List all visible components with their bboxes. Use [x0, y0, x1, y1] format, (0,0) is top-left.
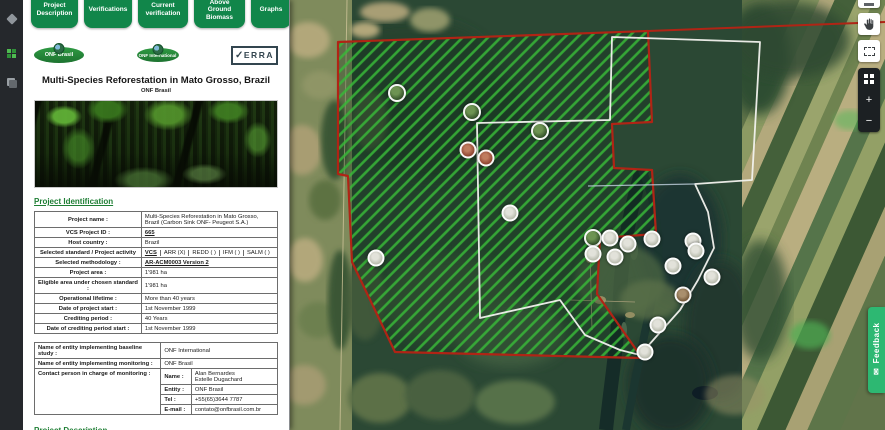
standard-cell: IFM ( ) — [219, 250, 243, 256]
row-label: Host country : — [35, 238, 142, 248]
row-label: Contact person in charge of monitoring : — [35, 369, 161, 415]
document-subtitle: ONF Brasil — [34, 88, 278, 94]
row-value: ONF Brasil — [161, 359, 278, 369]
row-value: Brazil — [141, 238, 277, 248]
photo-marker-forest[interactable] — [388, 84, 406, 102]
move-diamond-icon — [6, 13, 17, 24]
verra-logo: ✓ ERRA — [231, 46, 278, 65]
row-value: +55(65)3644 7787 — [191, 395, 277, 405]
nav-project-description-button[interactable]: Project Description — [31, 0, 78, 28]
grid-tool-button[interactable] — [0, 42, 23, 64]
photo-marker-soil[interactable] — [478, 150, 495, 167]
envelope-icon: ✉ — [872, 367, 882, 376]
green-grid-icon — [7, 49, 16, 58]
table-row: VCS Project ID : 665 — [35, 228, 278, 238]
table-row: Date of crediting period start : 1st Nov… — [35, 324, 278, 334]
photo-marker-photo[interactable] — [607, 249, 624, 266]
table-row: Eligible area under chosen standard : 1'… — [35, 278, 278, 294]
document-title: Multi-Species Reforestation in Mato Gros… — [34, 75, 278, 86]
row-label: Date of project start : — [35, 304, 142, 314]
contact-name-line2: Estelle Dugachard — [195, 377, 274, 383]
photo-marker-photo[interactable] — [650, 317, 667, 334]
standard-cell: SALM ( ) — [243, 250, 273, 256]
left-toolbar — [0, 0, 23, 430]
row-label: Operational lifetime : — [35, 294, 142, 304]
row-value: 1st November 1999 — [141, 304, 277, 314]
row-label: Selected methodology : — [35, 258, 142, 268]
onf-international-logo: ONF International — [137, 48, 179, 62]
zoom-out-button[interactable]: − — [858, 110, 880, 131]
globe-icon — [152, 44, 163, 55]
description-heading: Project Description — [34, 426, 278, 430]
photo-marker-forest[interactable] — [584, 229, 602, 247]
row-label: Eligible area under chosen standard : — [35, 278, 142, 294]
select-area-button[interactable] — [858, 40, 880, 62]
document-content: ONF Brasil ONF International ✓ ERRA Mult… — [23, 44, 289, 430]
contact-email: contato@onfbrasil.com.br — [191, 405, 277, 415]
project-document-panel[interactable]: Project Description Verifications Curren… — [23, 0, 290, 430]
photo-marker-soil[interactable] — [460, 142, 477, 159]
row-value: ONF International — [161, 343, 278, 359]
photo-marker-brown[interactable] — [675, 287, 692, 304]
identification-heading: Project Identification — [34, 197, 278, 206]
logo-row: ONF Brasil ONF International ✓ ERRA — [34, 44, 278, 66]
row-value: 1st November 1999 — [141, 324, 277, 334]
row-value: More than 40 years — [141, 294, 277, 304]
photo-marker-photo[interactable] — [602, 230, 619, 247]
standard-cell: VCS — [145, 250, 160, 256]
identification-table: Project name : Multi-Species Reforestati… — [34, 211, 278, 334]
satellite-map[interactable] — [290, 0, 885, 430]
table-row: Name of entity implementing baseline stu… — [35, 343, 278, 359]
row-value: ONF Brasil — [191, 385, 277, 395]
row-label: Selected standard / Project activity — [35, 248, 142, 258]
photo-marker-photo[interactable] — [368, 250, 385, 267]
row-value: AR-ACM0003 Version 2 — [141, 258, 277, 268]
table-row: Crediting period : 40 Years — [35, 314, 278, 324]
pan-tool-button[interactable] — [858, 13, 880, 35]
nav-current-verification-button[interactable]: Current verification — [138, 0, 188, 28]
satellite-map-svg — [290, 0, 885, 430]
row-label: Project name : — [35, 212, 142, 228]
photo-marker-photo[interactable] — [704, 269, 721, 286]
table-row-standard: Selected standard / Project activity VCS… — [35, 248, 278, 258]
nav-above-ground-biomass-button[interactable]: Above Ground Biomass — [194, 0, 245, 28]
project-area-polygon[interactable] — [338, 31, 656, 358]
row-label: Date of crediting period start : — [35, 324, 142, 334]
table-row-contact: Contact person in charge of monitoring :… — [35, 369, 278, 415]
forest-photo — [34, 100, 278, 188]
table-row: Tel : +55(65)3644 7787 — [161, 395, 277, 405]
table-row: Host country : Brazil — [35, 238, 278, 248]
feedback-label: Feedback — [872, 323, 881, 364]
row-label: E-mail : — [161, 405, 191, 415]
app-window: Project Description Verifications Curren… — [0, 0, 885, 430]
move-tool-button[interactable] — [0, 8, 23, 30]
nav-verifications-button[interactable]: Verifications — [84, 0, 132, 28]
fullscreen-button[interactable] — [858, 68, 880, 89]
row-label: VCS Project ID : — [35, 228, 142, 238]
row-value: 1'981 ha — [141, 278, 277, 294]
table-row: Name of entity implementing monitoring :… — [35, 359, 278, 369]
photo-marker-photo[interactable] — [637, 344, 654, 361]
row-value: 40 Years — [141, 314, 277, 324]
table-row: Project name : Multi-Species Reforestati… — [35, 212, 278, 228]
photo-marker-photo[interactable] — [665, 258, 682, 275]
feedback-button[interactable]: ✉ Feedback — [868, 307, 885, 393]
row-label: Project area : — [35, 268, 142, 278]
contact-table: Name : Alan Bernardes Estelle Dugachard … — [161, 369, 277, 414]
top-nav: Project Description Verifications Curren… — [31, 0, 290, 28]
tool-icon — [864, 3, 874, 6]
nav-graphs-button[interactable]: Graphs — [251, 0, 290, 28]
photo-marker-photo[interactable] — [688, 243, 705, 260]
zoom-in-button[interactable]: + — [858, 89, 880, 110]
row-label: Name : — [161, 369, 191, 385]
row-value: VCS ARR (X) REDD ( ) IFM ( ) SALM ( ) — [141, 248, 277, 258]
verra-logo-text: ERRA — [244, 50, 274, 60]
table-row: Entity : ONF Brasil — [161, 385, 277, 395]
row-label: Name of entity implementing baseline stu… — [35, 343, 161, 359]
globe-icon — [54, 43, 65, 54]
photo-marker-photo[interactable] — [585, 246, 602, 263]
photo-marker-photo[interactable] — [620, 236, 637, 253]
row-value: 665 — [141, 228, 277, 238]
photo-marker-forest[interactable] — [463, 103, 481, 121]
row-value: Multi-Species Reforestation in Mato Gros… — [141, 212, 277, 228]
marquee-icon — [864, 47, 875, 56]
photo-marker-photo[interactable] — [502, 205, 519, 222]
standard-cells: VCS ARR (X) REDD ( ) IFM ( ) SALM ( ) — [145, 250, 274, 256]
row-label: Entity : — [161, 385, 191, 395]
layers-icon — [7, 78, 17, 88]
row-label: Crediting period : — [35, 314, 142, 324]
table-row: Project area : 1'981 ha — [35, 268, 278, 278]
table-row: E-mail : contato@onfbrasil.com.br — [161, 405, 277, 415]
entities-table: Name of entity implementing baseline stu… — [34, 342, 278, 415]
photo-marker-forest[interactable] — [531, 122, 549, 140]
row-value: 1'981 ha — [141, 268, 277, 278]
row-value: Alan Bernardes Estelle Dugachard — [191, 369, 277, 385]
standard-cell: REDD ( ) — [188, 250, 219, 256]
expand-icon — [864, 74, 874, 84]
zoom-control-stack: + − — [858, 68, 880, 132]
table-row: Name : Alan Bernardes Estelle Dugachard — [161, 369, 277, 385]
map-tool-button-partial[interactable] — [858, 0, 880, 8]
table-row: Operational lifetime : More than 40 year… — [35, 294, 278, 304]
standard-cell: ARR (X) — [160, 250, 189, 256]
photo-marker-photo[interactable] — [644, 231, 661, 248]
row-label: Name of entity implementing monitoring : — [35, 359, 161, 369]
hand-icon — [863, 18, 876, 31]
table-row: Selected methodology : AR-ACM0003 Versio… — [35, 258, 278, 268]
layers-tool-button[interactable] — [0, 72, 23, 94]
table-row: Date of project start : 1st November 199… — [35, 304, 278, 314]
row-label: Tel : — [161, 395, 191, 405]
onf-brasil-logo: ONF Brasil — [34, 47, 84, 63]
